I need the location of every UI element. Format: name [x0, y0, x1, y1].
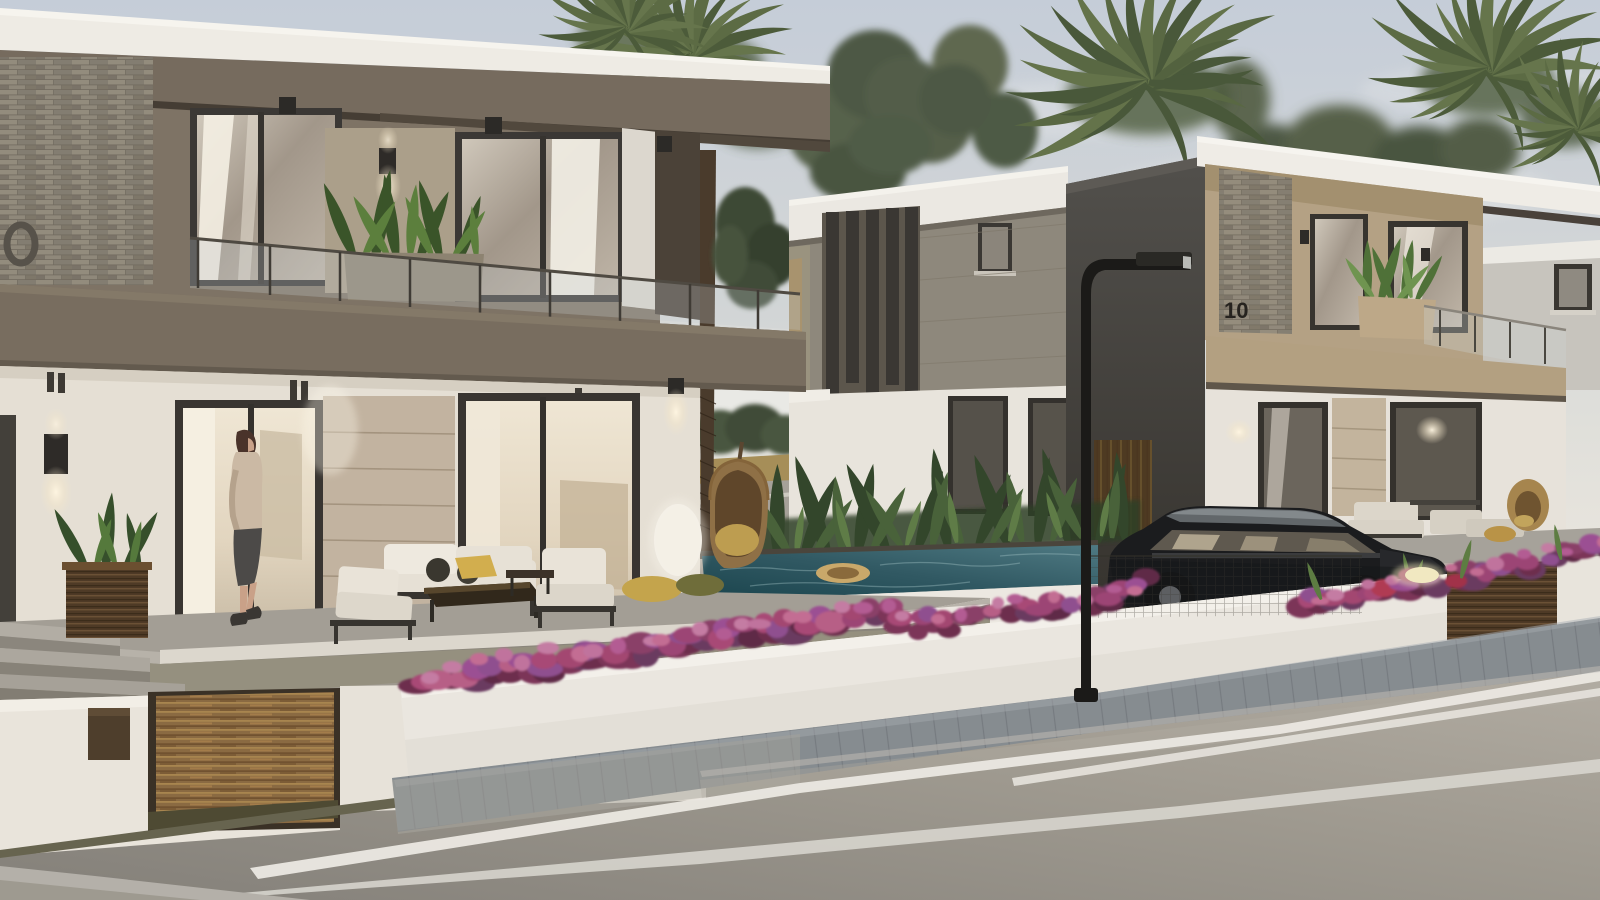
svg-text:10: 10: [1224, 298, 1248, 323]
